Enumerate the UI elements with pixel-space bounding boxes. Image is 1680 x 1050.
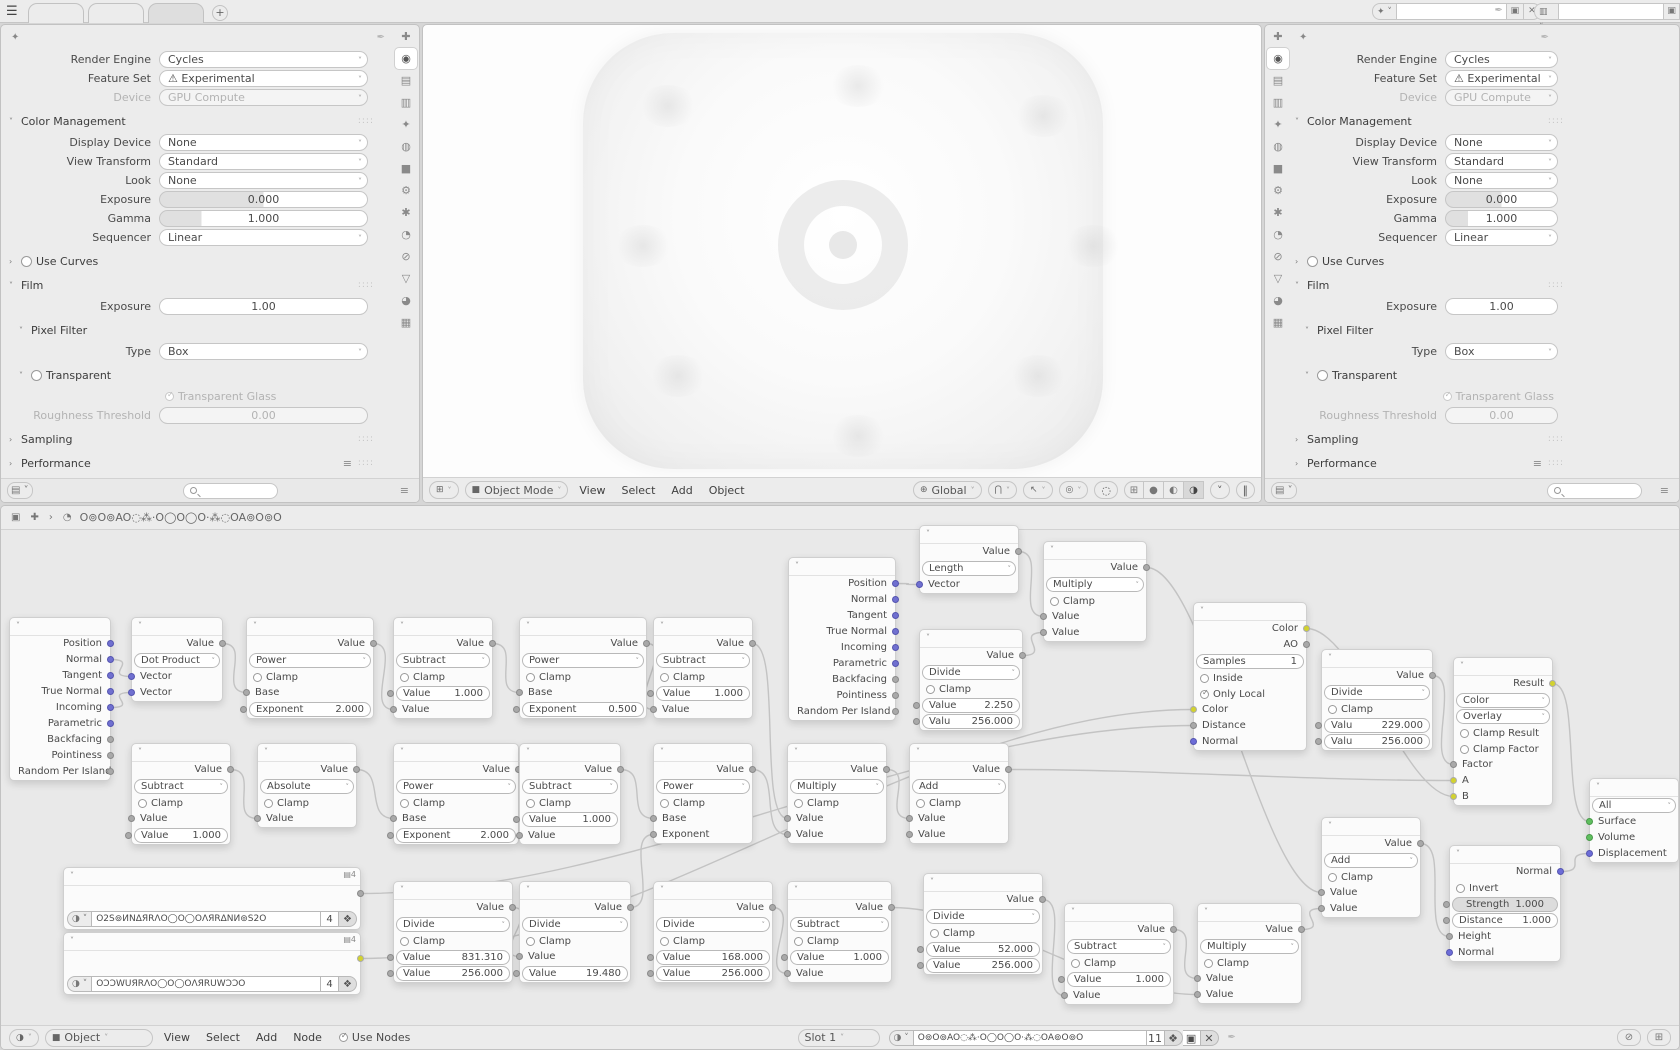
tab-tool-icon[interactable]: ✚ (395, 26, 417, 47)
checkbox-clamp[interactable]: Clamp (247, 669, 373, 685)
slider-roughness-threshold[interactable]: 0.00 (159, 407, 368, 424)
output-socket[interactable] (1557, 868, 1564, 875)
shading-mode-3[interactable]: ◑ (1184, 481, 1204, 499)
field-value[interactable]: Value256.000 (926, 958, 1040, 973)
checkbox-clamp[interactable]: Clamp (520, 669, 646, 685)
input-socket[interactable] (390, 815, 397, 822)
field-value[interactable]: Value52.000 (926, 942, 1040, 957)
input-socket[interactable] (1058, 976, 1065, 983)
select-power[interactable]: Power˅ (522, 653, 644, 668)
shader-node-editor[interactable]: ▣ ✚ › ◔ O⊚O⊚AO◌⁂·O◯O◯O·⁂◌OA⊚O⊚O ˅Positio… (0, 505, 1680, 1050)
new-workspace-tab-button[interactable]: + (212, 5, 228, 21)
viewlayer-selector-copy-button[interactable]: ▣ (1664, 3, 1680, 20)
tab-constraints-icon[interactable]: ⊘ (1267, 246, 1289, 267)
dropdown-sequencer[interactable]: Linear˅ (159, 229, 368, 246)
output-socket[interactable] (370, 640, 377, 647)
node-outn[interactable]: ˅All˅SurfaceVolumeDisplacement (1589, 778, 1679, 863)
node-sub2[interactable]: ˅ValueSubtract˅ClampValue1.000Value (653, 617, 753, 719)
node-header[interactable]: ˅ (788, 744, 886, 762)
dropdown-display-device[interactable]: None˅ (159, 134, 368, 151)
menu-select[interactable]: Select (616, 484, 660, 497)
subsection-pixel-filter[interactable]: ˅Pixel Filter (1295, 321, 1568, 339)
input-socket[interactable] (781, 954, 788, 961)
select-subtract[interactable]: Subtract˅ (522, 779, 618, 794)
material-slot-select[interactable]: Slot 1˅ (798, 1029, 880, 1047)
material-users-count[interactable]: 11 (1147, 1030, 1165, 1046)
node-header[interactable]: ˅ (132, 744, 230, 762)
tab-object-icon[interactable]: ■ (395, 158, 417, 179)
pin-icon[interactable]: ✒ (1495, 5, 1503, 16)
collapse-chevron-icon[interactable]: ˅ (930, 877, 934, 886)
field-exponent[interactable]: Exponent2.000 (396, 828, 516, 843)
menu-add[interactable]: Add (251, 1031, 282, 1044)
input-socket[interactable] (1586, 818, 1593, 825)
checkbox-transparent-glass[interactable]: Transparent Glass (1437, 389, 1568, 405)
output-socket[interactable] (883, 766, 890, 773)
output-socket[interactable] (1429, 672, 1436, 679)
dropdown-render-engine[interactable]: Cycles˅ (159, 51, 368, 68)
checkbox-clamp[interactable]: Clamp (394, 933, 512, 949)
tab-scene-icon[interactable]: ✦ (395, 114, 417, 135)
tab-view-layer-icon[interactable]: ▥ (395, 92, 417, 113)
collapse-chevron-icon[interactable]: ˅ (400, 885, 404, 894)
collapse-chevron-icon[interactable]: ˅ (1050, 545, 1054, 554)
section-grip[interactable]: :::: (1548, 116, 1564, 126)
node-add1[interactable]: ˅ValueAdd˅ClampValueValue (909, 743, 1009, 844)
collapse-chevron-icon[interactable]: ˅ (1204, 907, 1208, 916)
checkbox-clamp[interactable]: Clamp (788, 795, 886, 811)
dropdown-look[interactable]: None˅ (1445, 172, 1558, 189)
section-grip[interactable]: :::: (1548, 458, 1564, 468)
menu-node[interactable]: Node (288, 1031, 327, 1044)
section-grip[interactable]: :::: (358, 280, 374, 290)
node-pow2[interactable]: ˅ValuePower˅ClampBaseExponent0.500 (519, 617, 647, 719)
collapse-chevron-icon[interactable]: ˅ (526, 885, 530, 894)
node-div3[interactable]: ˅ValueDivide˅ClampValue168.000Value256.0… (653, 881, 773, 983)
output-socket[interactable] (888, 904, 895, 911)
collapse-chevron-icon[interactable]: ˅ (1596, 782, 1600, 791)
output-socket[interactable] (107, 640, 114, 647)
collapse-chevron-icon[interactable]: ˅ (1460, 661, 1464, 670)
node-header[interactable]: ˅ (1065, 904, 1173, 922)
tab-render-icon[interactable]: ◉ (1267, 48, 1289, 69)
node-scr1[interactable]: ˅▤4◑ ˅O2S⊚ИNΔЯRΛO◯O◯OΛЯRΔNИ⊚S2O4❖ (63, 867, 361, 930)
viewlayer-selector-icon[interactable]: ▥ ˅ (1534, 3, 1559, 20)
node-sub1[interactable]: ˅ValueSubtract˅ClampValue1.000Value (393, 617, 493, 719)
material-unlink-button[interactable]: ✕ (1201, 1030, 1219, 1046)
select-add[interactable]: Add˅ (912, 779, 1006, 794)
checkbox-clamp[interactable]: Clamp (258, 795, 356, 811)
node-header[interactable]: ˅ (1322, 650, 1432, 668)
subsection-pixel-filter[interactable]: ˅Pixel Filter (9, 321, 378, 339)
input-socket[interactable] (647, 690, 654, 697)
select-divide[interactable]: Divide˅ (522, 917, 628, 932)
node-scr2[interactable]: ˅▤4◑ ˅OƆƆWUЯRΛO◯O◯OΛЯRUWƆƆO4❖ (63, 932, 361, 995)
select-subtract[interactable]: Subtract˅ (656, 653, 750, 668)
input-socket[interactable] (1450, 793, 1457, 800)
checkbox-clamp[interactable]: Clamp (1044, 593, 1146, 609)
cursor-button[interactable]: ↖˅ (1023, 481, 1053, 499)
checkbox-clamp-result[interactable]: Clamp Result (1454, 725, 1552, 741)
node-abs1[interactable]: ˅ValueAbsolute˅ClampValue (257, 743, 357, 828)
input-socket[interactable] (1450, 777, 1457, 784)
material-pin-icon[interactable]: ✒ (1228, 1032, 1236, 1043)
output-socket[interactable] (107, 656, 114, 663)
collapse-chevron-icon[interactable]: ˅ (1328, 821, 1332, 830)
checkbox-clamp[interactable]: Clamp (1322, 701, 1432, 717)
dropdown-look[interactable]: None˅ (159, 172, 368, 189)
node-header[interactable]: ˅ (788, 882, 891, 900)
fake-user-shield-icon[interactable]: ❖ (1165, 1030, 1183, 1046)
collapse-chevron-icon[interactable]: ˅ (526, 747, 530, 756)
output-socket[interactable] (1298, 926, 1305, 933)
output-socket[interactable] (749, 640, 756, 647)
viewport-editor-type-button[interactable]: ⊞˅ (429, 481, 459, 499)
section-checkbox[interactable] (1317, 370, 1328, 381)
section-grip[interactable]: :::: (358, 458, 374, 468)
output-socket[interactable] (892, 644, 899, 651)
output-socket[interactable] (357, 890, 364, 897)
input-socket[interactable] (1450, 761, 1457, 768)
input-socket[interactable] (784, 831, 791, 838)
list-icon[interactable]: ≡ (343, 457, 352, 470)
select-power[interactable]: Power˅ (396, 779, 516, 794)
field-value[interactable]: Value19.480 (522, 966, 628, 981)
orientation-select[interactable]: ⊕Global˅ (913, 481, 982, 499)
node-pow4[interactable]: ˅ValuePower˅ClampBaseExponent (653, 743, 753, 844)
output-socket[interactable] (892, 612, 899, 619)
scene-selector-icon[interactable]: ✦ ˅ (1372, 3, 1397, 20)
checkbox-clamp[interactable]: Clamp (920, 681, 1022, 697)
dropdown-type[interactable]: Box˅ (159, 343, 368, 360)
slider-exposure[interactable]: 0.000 (159, 191, 368, 208)
tab-particles-icon[interactable]: ✱ (1267, 202, 1289, 223)
node-header[interactable]: ˅ (258, 744, 356, 762)
node-header[interactable]: ˅▤4 (64, 868, 360, 886)
output-socket[interactable] (1143, 564, 1150, 571)
collapse-chevron-icon[interactable]: ˅ (138, 621, 142, 630)
input-socket[interactable] (906, 815, 913, 822)
input-socket[interactable] (913, 702, 920, 709)
section-color-management[interactable]: ˅Color Management:::: (9, 112, 378, 130)
node-bump[interactable]: ˅NormalInvertStrength1.000Distance1.000H… (1449, 845, 1561, 962)
field-value[interactable]: Value1.000 (134, 828, 228, 843)
input-socket[interactable] (1194, 975, 1201, 982)
input-socket[interactable] (913, 718, 920, 725)
tab-object-icon[interactable]: ■ (1267, 158, 1289, 179)
node-sub5[interactable]: ˅ValueSubtract˅ClampValue1.000Value (787, 881, 892, 983)
node-header[interactable]: ˅ (520, 618, 646, 636)
field-value[interactable]: Value1.000 (396, 686, 490, 701)
use-nodes-checkbox[interactable]: Use Nodes (333, 1030, 417, 1046)
input-socket[interactable] (513, 706, 520, 713)
collapse-chevron-icon[interactable]: ˅ (138, 747, 142, 756)
node-header[interactable]: ˅ (654, 744, 752, 762)
fake-user-shield-icon[interactable]: ❖ (339, 976, 357, 992)
select-absolute[interactable]: Absolute˅ (260, 779, 354, 794)
output-socket[interactable] (1015, 548, 1022, 555)
checkbox-inside[interactable]: Inside (1194, 670, 1306, 686)
menu-view[interactable]: View (574, 484, 610, 497)
node-header[interactable]: ˅ (1198, 904, 1301, 922)
output-socket[interactable] (892, 660, 899, 667)
shading-mode-2[interactable]: ◐ (1164, 481, 1184, 499)
tab-data-icon[interactable]: ▽ (1267, 268, 1289, 289)
checkbox-clamp[interactable]: Clamp (1198, 955, 1301, 971)
node-geo1[interactable]: ˅PositionNormalTangentTrue NormalIncomin… (9, 617, 111, 781)
section-sampling[interactable]: ›Sampling:::: (1295, 430, 1568, 448)
scene-selector-field[interactable]: ✒ (1397, 3, 1507, 20)
input-socket[interactable] (1194, 991, 1201, 998)
subsection-transparent[interactable]: ˅Transparent (9, 366, 378, 384)
input-socket[interactable] (1315, 738, 1322, 745)
shading-mode-1[interactable]: ● (1144, 481, 1164, 499)
shading-mode-0[interactable]: ⊞ (1124, 481, 1144, 499)
node-header[interactable]: ˅ (394, 744, 518, 762)
node-geo2[interactable]: ˅PositionNormalTangentTrue NormalIncomin… (788, 557, 896, 721)
dropdown-feature-set[interactable]: ⚠ Experimental˅ (159, 70, 368, 87)
output-socket[interactable] (107, 688, 114, 695)
field-valu[interactable]: Valu256.000 (1324, 734, 1430, 749)
checkbox-clamp[interactable]: Clamp (1322, 869, 1420, 885)
input-socket[interactable] (125, 832, 132, 839)
node-editor-type-button[interactable]: ◑˅ (9, 1029, 39, 1047)
section-use-curves[interactable]: ›Use Curves (1295, 252, 1568, 270)
node-mul2[interactable]: ˅ValueMultiply˅ClampValueValue (1043, 541, 1147, 642)
node-sub3[interactable]: ˅ValueSubtract˅ClampValueValue1.000 (131, 743, 231, 845)
input-socket[interactable] (387, 832, 394, 839)
collapse-chevron-icon[interactable]: ˅ (400, 747, 404, 756)
section-checkbox[interactable] (31, 370, 42, 381)
node-header[interactable]: ˅ (247, 618, 373, 636)
section-grip[interactable]: :::: (1548, 434, 1564, 444)
input-socket[interactable] (647, 970, 654, 977)
select-multiply[interactable]: Multiply˅ (790, 779, 884, 794)
output-socket[interactable] (769, 904, 776, 911)
input-socket[interactable] (387, 954, 394, 961)
select-all[interactable]: All˅ (1592, 798, 1676, 813)
node-header[interactable]: ˅ (1590, 779, 1678, 797)
select-multiply[interactable]: Multiply˅ (1200, 939, 1299, 954)
section-film[interactable]: ˅Film:::: (9, 276, 378, 294)
node-div0[interactable]: ˅ValueDivide˅ClampValue2.250Valu256.000 (919, 629, 1023, 731)
datablock-icon[interactable]: ◑ ˅ (67, 976, 92, 992)
field-value[interactable]: Value256.000 (656, 966, 770, 981)
collapse-chevron-icon[interactable]: ˅ (1456, 849, 1460, 858)
output-socket[interactable] (892, 628, 899, 635)
select-add[interactable]: Add˅ (1324, 853, 1418, 868)
section-film[interactable]: ˅Film:::: (1295, 276, 1568, 294)
filter-icon[interactable]: ≡ (400, 484, 409, 497)
node-dot[interactable]: ˅ValueDot Product˅VectorVector (131, 617, 223, 702)
input-socket[interactable] (1040, 629, 1047, 636)
node-header[interactable]: ˅ (394, 882, 512, 900)
section-grip[interactable]: :::: (358, 434, 374, 444)
output-socket[interactable] (489, 640, 496, 647)
viewlayer-selector-field[interactable] (1559, 3, 1664, 20)
collapse-chevron-icon[interactable]: ˅ (1071, 907, 1075, 916)
output-socket[interactable] (107, 736, 114, 743)
node-pow3[interactable]: ˅ValuePower˅ClampBaseExponent2.000 (393, 743, 519, 845)
menu-add[interactable]: Add (666, 484, 697, 497)
output-socket[interactable] (1549, 680, 1556, 687)
section-performance[interactable]: ›Performance≡:::: (9, 454, 378, 472)
node-header[interactable]: ˅ (1044, 542, 1146, 560)
output-socket[interactable] (107, 720, 114, 727)
input-socket[interactable] (1190, 738, 1197, 745)
output-socket[interactable] (107, 752, 114, 759)
select-divide[interactable]: Divide˅ (926, 909, 1040, 924)
input-socket[interactable] (917, 962, 924, 969)
output-socket[interactable] (1170, 926, 1177, 933)
node-header[interactable]: ˅ (1194, 603, 1306, 621)
output-socket[interactable] (892, 596, 899, 603)
datablock-icon[interactable]: ◑ ˅ (67, 911, 92, 927)
tab-physics-icon[interactable]: ◔ (395, 224, 417, 245)
output-socket[interactable] (357, 955, 364, 962)
footer-right-icon-1[interactable]: ⊞ (1647, 1029, 1671, 1046)
collapse-chevron-icon[interactable]: ˅ (660, 885, 664, 894)
tab-view-layer-icon[interactable]: ▥ (1267, 92, 1289, 113)
output-socket[interactable] (749, 766, 756, 773)
tab-output-icon[interactable]: ▤ (1267, 70, 1289, 91)
input-socket[interactable] (784, 815, 791, 822)
output-socket[interactable] (1303, 625, 1310, 632)
select-power[interactable]: Power˅ (656, 779, 750, 794)
tab-constraints-icon[interactable]: ⊘ (395, 246, 417, 267)
tab-data-icon[interactable]: ▽ (395, 268, 417, 289)
node-header[interactable]: ˅ (789, 558, 895, 576)
select-divide[interactable]: Divide˅ (656, 917, 770, 932)
collapse-chevron-icon[interactable]: ˅ (264, 747, 268, 756)
node-mix[interactable]: ˅ResultColor˅Overlay˅Clamp ResultClamp F… (1453, 657, 1553, 806)
shader-type-select[interactable]: ■Object˅ (45, 1029, 153, 1047)
tab-modifiers-icon[interactable]: ⚙ (1267, 180, 1289, 201)
input-socket[interactable] (1586, 850, 1593, 857)
node-header[interactable]: ˅ (1454, 658, 1552, 676)
select-subtract[interactable]: Subtract˅ (134, 779, 228, 794)
output-socket[interactable] (107, 768, 114, 775)
input-socket[interactable] (1446, 933, 1453, 940)
input-socket[interactable] (387, 970, 394, 977)
output-socket[interactable] (1019, 652, 1026, 659)
node-div1[interactable]: ˅ValueDivide˅ClampValue831.310Value256.0… (393, 881, 513, 983)
field-samples[interactable]: Samples1 (1196, 654, 1304, 669)
field-value[interactable]: Value256.000 (396, 966, 510, 981)
slider-gamma[interactable]: 1.000 (1445, 210, 1558, 227)
menu-object[interactable]: Object (704, 484, 750, 497)
node-mul3[interactable]: ˅ValueMultiply˅ClampValueValue (1197, 903, 1302, 1004)
field-value[interactable]: Value1.000 (522, 812, 618, 827)
tab-modifiers-icon[interactable]: ⚙ (395, 180, 417, 201)
output-socket[interactable] (219, 640, 226, 647)
input-socket[interactable] (1040, 613, 1047, 620)
tab-world-icon[interactable]: ◍ (395, 136, 417, 157)
output-socket[interactable] (353, 766, 360, 773)
node-div5[interactable]: ˅ValueDivide˅ClampValu229.000Valu256.000 (1321, 649, 1433, 751)
workspace-tab[interactable] (148, 3, 204, 23)
input-socket[interactable] (128, 689, 135, 696)
node-header[interactable]: ˅ (1450, 846, 1560, 864)
select-divide[interactable]: Divide˅ (1324, 685, 1430, 700)
tab-texture-icon[interactable]: ▦ (1267, 312, 1289, 333)
output-socket[interactable] (107, 672, 114, 679)
select-subtract[interactable]: Subtract˅ (396, 653, 490, 668)
node-sub6[interactable]: ˅ValueSubtract˅ClampValue1.000Value (1064, 903, 1174, 1005)
properties-pin-icon[interactable]: ✒ (377, 32, 385, 43)
collapse-chevron-icon[interactable]: ˅ (400, 621, 404, 630)
output-socket[interactable] (892, 692, 899, 699)
section-use-curves[interactable]: ›Use Curves (9, 252, 378, 270)
section-performance[interactable]: ›Performance≡:::: (1295, 454, 1568, 472)
node-header[interactable]: ˅ (920, 630, 1022, 648)
collapse-chevron-icon[interactable]: ˅ (660, 621, 664, 630)
node-header[interactable]: ˅ (924, 874, 1042, 892)
datablock-name-field[interactable]: O2S⊚ИNΔЯRΛO◯O◯OΛЯRΔNИ⊚S2O (92, 911, 321, 927)
checkbox-clamp[interactable]: Clamp (132, 795, 230, 811)
dropdown-sequencer[interactable]: Linear˅ (1445, 229, 1558, 246)
checkbox-clamp[interactable]: Clamp (394, 669, 492, 685)
tab-world-icon[interactable]: ◍ (1267, 136, 1289, 157)
material-copy-button[interactable]: ▣ (1183, 1030, 1201, 1046)
field-value[interactable]: Value1.000 (656, 686, 750, 701)
input-socket[interactable] (917, 946, 924, 953)
select-divide[interactable]: Divide˅ (396, 917, 510, 932)
input-socket[interactable] (650, 815, 657, 822)
input-socket[interactable] (1443, 901, 1450, 908)
dropdown-view-transform[interactable]: Standard˅ (1445, 153, 1558, 170)
slider-exposure[interactable]: 1.00 (1445, 298, 1558, 315)
footer-right-icon-0[interactable]: ⊘ (1617, 1029, 1641, 1046)
collapse-chevron-icon[interactable]: ˅ (70, 936, 74, 945)
menu-icon[interactable]: ☰ (6, 4, 18, 19)
output-socket[interactable] (643, 640, 650, 647)
output-socket[interactable] (1303, 641, 1310, 648)
input-socket[interactable] (240, 706, 247, 713)
field-exponent[interactable]: Exponent0.500 (522, 702, 644, 717)
collapse-chevron-icon[interactable]: ˅ (1328, 653, 1332, 662)
input-socket[interactable] (128, 815, 135, 822)
datablock-name-field[interactable]: OƆƆWUЯRΛO◯O◯OΛЯRUWƆƆO (92, 976, 321, 992)
field-value[interactable]: Value2.250 (922, 698, 1020, 713)
checkbox-clamp[interactable]: Clamp (520, 933, 630, 949)
shading-dropdown-button[interactable]: ˅ (1210, 481, 1230, 499)
checkbox-clamp-factor[interactable]: Clamp Factor (1454, 741, 1552, 757)
field-value[interactable]: Value831.310 (396, 950, 510, 965)
input-socket[interactable] (1190, 722, 1197, 729)
overlays-button[interactable]: ◌ (1094, 481, 1118, 499)
collapse-chevron-icon[interactable]: ˅ (794, 885, 798, 894)
input-socket[interactable] (390, 706, 397, 713)
output-socket[interactable] (892, 676, 899, 683)
field-valu[interactable]: Valu229.000 (1324, 718, 1430, 733)
tab-material-icon[interactable]: ◕ (1267, 290, 1289, 311)
checkbox-only-local[interactable]: Only Local (1194, 686, 1306, 702)
input-socket[interactable] (1061, 992, 1068, 999)
mode-select[interactable]: ■Object Mode˅ (465, 481, 569, 499)
list-icon[interactable]: ≡ (1533, 457, 1542, 470)
collapse-chevron-icon[interactable]: ˅ (253, 621, 257, 630)
subsection-transparent[interactable]: ˅Transparent (1295, 366, 1568, 384)
collapse-chevron-icon[interactable]: ˅ (16, 621, 20, 630)
input-socket[interactable] (650, 831, 657, 838)
checkbox-clamp[interactable]: Clamp (520, 795, 620, 811)
checkbox-clamp[interactable]: Clamp (394, 795, 518, 811)
node-mul1[interactable]: ˅ValueMultiply˅ClampValueValue (787, 743, 887, 844)
input-socket[interactable] (647, 954, 654, 961)
input-socket[interactable] (906, 831, 913, 838)
tab-tool-icon[interactable]: ✚ (1267, 26, 1289, 47)
